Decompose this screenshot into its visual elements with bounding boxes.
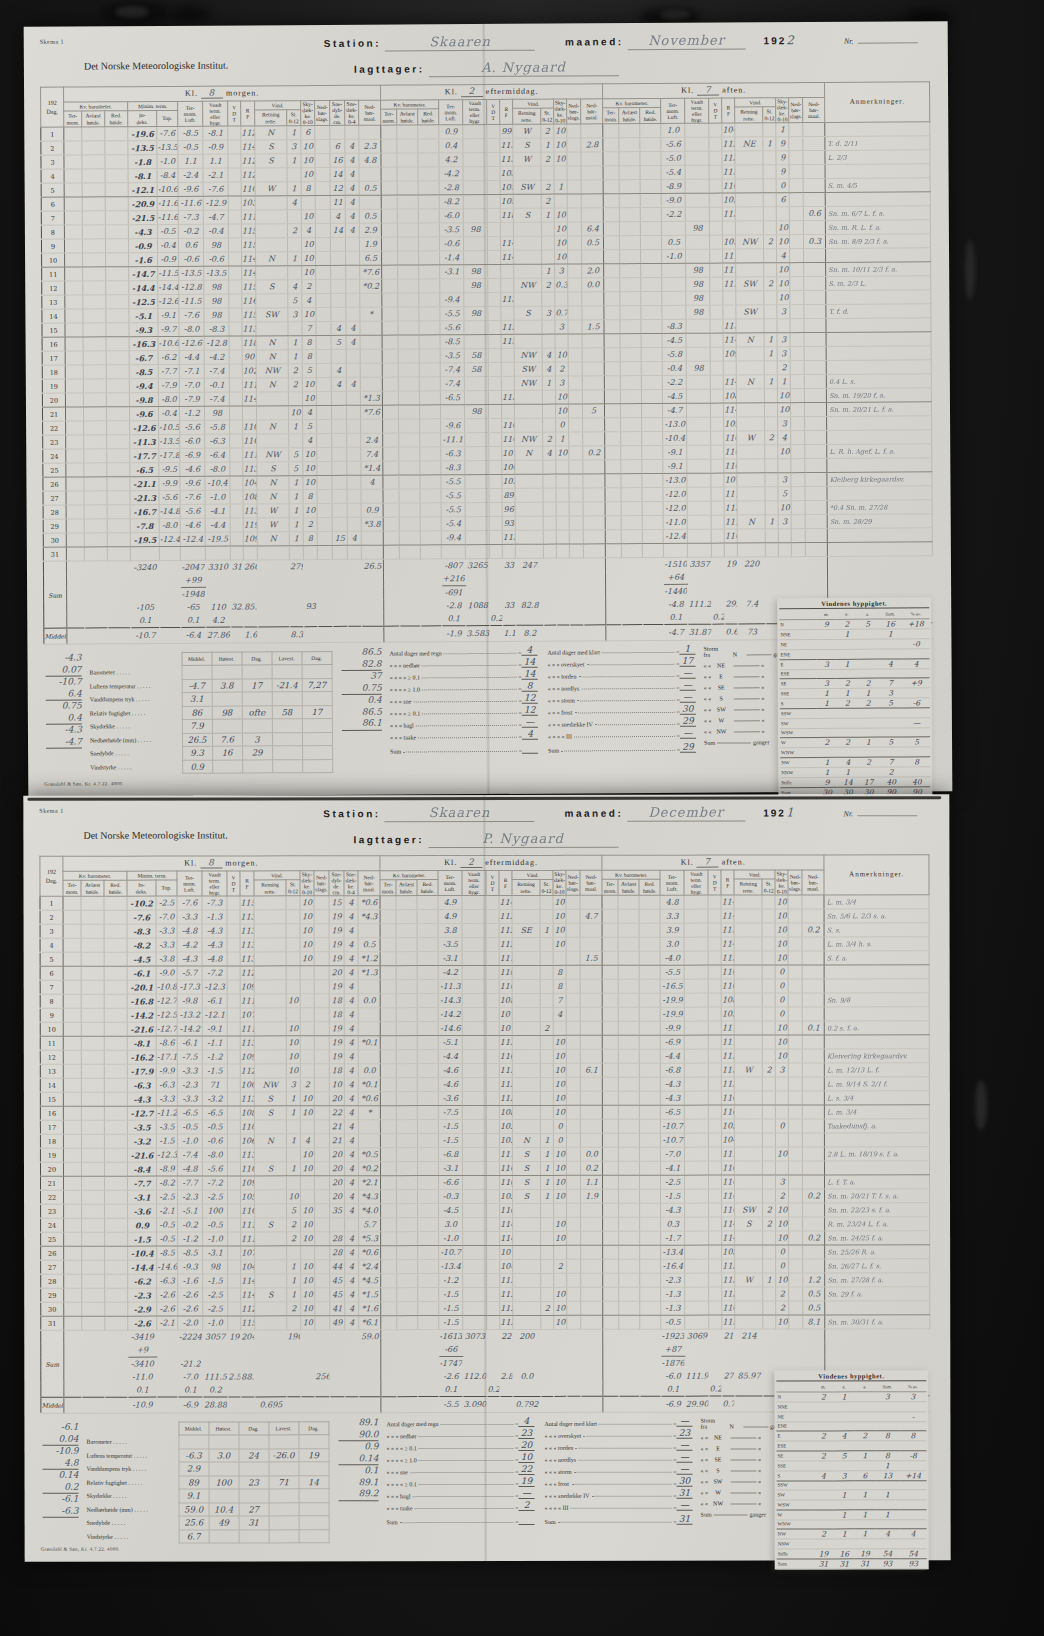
obs-value: 114 xyxy=(242,266,256,280)
obs-value: 98 xyxy=(686,221,710,235)
obs-value: -21.1 xyxy=(130,477,159,491)
storm-direction: E xyxy=(708,1446,728,1452)
obs-value: 98 xyxy=(686,277,710,291)
days-with-sky-list: Antal dager med klart=1« « « overskyet=1… xyxy=(547,643,696,754)
obs-value: -1.3 xyxy=(661,1301,685,1315)
stats-col-header: Dag. xyxy=(241,652,271,665)
count-label: « « « overskyet xyxy=(548,662,585,668)
wind-count: 5 xyxy=(879,737,903,747)
obs-value: 106 xyxy=(502,461,515,475)
obs-value: -4.1 xyxy=(205,504,230,518)
days-with-precip-list: Antal dager med regn=4« « « nedbør=14« «… xyxy=(389,644,538,755)
obs-value: -7.4 xyxy=(440,363,464,377)
obs-value: 114 xyxy=(500,1218,513,1232)
obs-value: 20 xyxy=(329,1176,344,1190)
obs-value: 104 xyxy=(722,123,735,137)
obs-value: -4.6 xyxy=(438,1078,462,1092)
wind-count xyxy=(813,1539,834,1549)
obs-value: 1 xyxy=(554,180,567,194)
wind-col-header: m. xyxy=(816,610,837,620)
obs-value: -7.7 xyxy=(127,1176,156,1190)
column-header: Sky- dæk- ke. 0-10 xyxy=(300,871,314,896)
obs-value: 10 xyxy=(775,1021,788,1035)
obs-value: 2 xyxy=(542,278,555,292)
obs-value: 4 xyxy=(345,1232,359,1246)
wind-count xyxy=(813,1461,834,1471)
obs-value: -3.8 xyxy=(156,952,177,966)
column-header: Vind. xyxy=(512,870,553,879)
wind-count: 2 xyxy=(837,619,858,629)
obs-value: 113 xyxy=(500,153,513,167)
obs-value: -12.9 xyxy=(203,196,228,210)
day-number: 2 xyxy=(41,141,64,155)
count-value: 19 xyxy=(519,1476,535,1487)
obs-value: -12.3 xyxy=(202,980,227,994)
institute-name: Det Norske Meteorologiske Institut. xyxy=(83,829,227,840)
remark xyxy=(825,122,930,137)
remark: Sn. 9/8 xyxy=(824,993,929,1007)
obs-value: 10 xyxy=(302,252,316,266)
count-row: « « « « ≥ 0.1=20 xyxy=(386,1439,534,1451)
day-number: 1 xyxy=(41,127,64,141)
obs-value: 1 xyxy=(286,1162,300,1176)
obs-value: -4.7 xyxy=(664,624,688,640)
obs-value: N xyxy=(256,350,288,364)
obs-value: -12.0 xyxy=(663,501,687,515)
stats-value xyxy=(298,1462,328,1476)
wind-direction-label: ENE xyxy=(776,1422,813,1432)
obs-value: 115 xyxy=(722,1315,735,1329)
column-header: Ned- bør- slags. xyxy=(315,100,330,125)
scan-artifact xyxy=(170,6,210,22)
table-row: 14-6.3-6.3-2.371100NW32104*0.1-4.611310-… xyxy=(40,1077,929,1093)
obs-value: -7.0 xyxy=(156,910,177,924)
wind-count xyxy=(855,1500,876,1510)
obs-value: -3.3 xyxy=(177,1064,202,1078)
stats-value: 17 xyxy=(302,705,332,719)
obs-value: S xyxy=(254,1106,286,1120)
obs-value: 110 xyxy=(724,529,737,543)
obs-value: -807 xyxy=(441,559,465,573)
obs-value: -10.5 xyxy=(159,421,180,435)
obs-value: 8 xyxy=(303,490,317,504)
column-header: Minim. term. xyxy=(127,871,177,880)
obs-value: 113 xyxy=(502,531,515,545)
obs-value: -4.5 xyxy=(663,389,687,403)
obs-value: 4 xyxy=(345,1204,359,1218)
obs-value: 9 xyxy=(776,151,789,165)
obs-value: 105 xyxy=(500,195,513,209)
obs-value: -8.4 xyxy=(157,169,178,183)
obs-value: S xyxy=(513,1176,541,1190)
wind-count: 1 xyxy=(855,1529,876,1539)
printer-mark: Grøndahl & Søn, Kr. 4.7.22. 4000. xyxy=(41,1547,120,1552)
stats-value: 19 xyxy=(298,1448,328,1462)
count-row: « « « « III=— xyxy=(548,727,696,740)
obs-value: -3.2 xyxy=(202,1092,227,1106)
obs-value: *4.3 xyxy=(358,910,380,924)
obs-value: -11.0 xyxy=(663,515,687,529)
count-value: — xyxy=(680,728,696,739)
obs-value: -1.6 xyxy=(178,1274,203,1288)
count-row: « « « snedække IV=31 xyxy=(545,1487,693,1499)
obs-value: *0.6 xyxy=(358,896,380,910)
obs-value: 4 xyxy=(344,1008,358,1022)
obs-value: 111.5 xyxy=(203,1371,228,1384)
wind-col-header: % av. xyxy=(902,609,929,619)
day-number: 31 xyxy=(43,547,66,561)
count-label: Antal dager med klart xyxy=(544,1421,596,1427)
obs-value: 10 xyxy=(553,1050,566,1064)
obs-value: -5.8 xyxy=(662,347,686,361)
stats-value: 27 xyxy=(239,1503,269,1517)
obs-value: -20.1 xyxy=(127,980,156,994)
observation-table: 192Dag.Kl. 8 morgen.Kl. 2 eftermiddag.Kl… xyxy=(24,81,951,645)
obs-value: 4 xyxy=(345,1288,359,1302)
obs-value: 114 xyxy=(724,375,737,389)
stats-row-label: Barometer . . . . . xyxy=(86,1435,178,1449)
count-value: 20 xyxy=(518,1440,534,1451)
obs-value: 10 xyxy=(553,938,566,952)
day-number: 31 xyxy=(41,1316,64,1330)
obs-value: -1.5 xyxy=(128,1232,157,1246)
obs-value: 10 xyxy=(554,1232,567,1246)
wind-count: 1 xyxy=(858,688,879,698)
obs-value: -2.6 xyxy=(157,1302,178,1316)
obs-value: 31.87 xyxy=(688,624,712,640)
obs-value: 6.5 xyxy=(360,251,382,265)
obs-value: 10 xyxy=(775,1049,788,1063)
obs-value: 4 xyxy=(344,994,358,1008)
obs-value: -5.7 xyxy=(177,966,202,980)
wind-count: 1 xyxy=(875,1509,899,1519)
remark: L. m. 3/4 xyxy=(824,895,929,909)
obs-value: NW xyxy=(254,1078,286,1092)
obs-value: 0.4 xyxy=(439,139,463,153)
wind-count xyxy=(878,669,902,679)
column-header: St. 0-12 xyxy=(287,109,301,125)
wind-frequency-box: Vindenes hyppighet.m.e.a.Sum.% av.N2133N… xyxy=(774,1370,928,1569)
obs-value: 2 xyxy=(776,1301,789,1315)
wind-count xyxy=(878,649,902,659)
obs-value: -14.2 xyxy=(127,1008,156,1022)
obs-value: 27 xyxy=(722,1370,735,1383)
count-label: « « « sne xyxy=(390,699,412,705)
obs-value: 2.4 xyxy=(361,433,383,447)
obs-value: 88.5 xyxy=(241,1371,255,1384)
obs-value: 10 xyxy=(776,1315,789,1329)
obs-value: 107 xyxy=(724,473,737,487)
wind-count xyxy=(817,748,838,758)
obs-value: -4.8 xyxy=(664,598,688,611)
wind-direction-label: SSE xyxy=(776,1461,813,1471)
obs-value: -2.0 xyxy=(178,1316,203,1330)
wind-count xyxy=(903,688,930,698)
obs-value: 10 xyxy=(777,277,790,291)
stats-value: 49 xyxy=(209,1516,239,1530)
obs-value: 110 xyxy=(240,1162,254,1176)
stats-value xyxy=(269,1516,299,1530)
obs-value: -2.3 xyxy=(177,1078,202,1092)
wind-count xyxy=(903,708,930,718)
stats-value: 89 xyxy=(179,1476,209,1490)
obs-value: 111 xyxy=(723,263,736,277)
obs-value: 1.1 xyxy=(203,154,228,168)
obs-value: 10 xyxy=(300,910,314,924)
obs-value: *1.4 xyxy=(361,461,383,475)
stats-value xyxy=(209,1489,239,1503)
obs-value: 59.0 xyxy=(359,1330,381,1344)
column-header: Ter- mom. Luft. xyxy=(178,101,203,126)
column-header: Minim. term. xyxy=(128,101,178,110)
stats-value xyxy=(302,719,332,733)
count-label: « « « « ≥ 0.1 xyxy=(387,1481,417,1487)
obs-value: 4 xyxy=(344,980,358,994)
obs-value: 3.090 xyxy=(463,1397,487,1413)
day-number: 4 xyxy=(40,938,63,952)
maaned-label: maaned: xyxy=(565,36,624,47)
obs-value: 10 xyxy=(300,1106,314,1120)
obs-value: 110 xyxy=(722,179,735,193)
obs-value: 109 xyxy=(240,1176,254,1190)
wind-count: 4 xyxy=(900,1529,927,1539)
sum-label: Sum xyxy=(43,561,66,628)
wind-count xyxy=(900,1490,927,1500)
obs-value: -2.3 xyxy=(661,1273,685,1287)
obs-value: 3069 xyxy=(685,1329,709,1343)
count-label: « « « taake xyxy=(387,1505,413,1511)
obs-value: 0 xyxy=(776,179,789,193)
obs-value: -1.2 xyxy=(178,1232,203,1246)
stats-value: 26.5 xyxy=(182,733,212,747)
table-row: 1-10.2-2.5-7.6-7.311510154*0.64.9114104.… xyxy=(40,895,929,911)
obs-value: 4 xyxy=(344,896,358,910)
obs-value: 113 xyxy=(500,139,513,153)
obs-value: 204 xyxy=(241,1330,255,1344)
column-header: Avlæst høide. xyxy=(619,107,640,124)
obs-value: -8.0 xyxy=(158,393,179,407)
column-header: V D T xyxy=(486,870,499,895)
obs-value: 0.5 xyxy=(581,236,603,250)
obs-value: -6.2 xyxy=(128,1274,157,1288)
obs-value: -105 xyxy=(131,601,160,614)
wind-direction-label: WSW xyxy=(780,728,817,738)
count-label: « « « sne xyxy=(387,1469,409,1475)
obs-value: 112 xyxy=(240,1064,254,1078)
count-value: 30 xyxy=(680,704,696,715)
obs-value: 10 xyxy=(302,308,316,322)
day-number: 9 xyxy=(40,1008,63,1022)
obs-value: NW xyxy=(515,432,543,446)
wind-col-header: Sum. xyxy=(878,610,902,620)
obs-value: -9.6 xyxy=(180,476,205,490)
obs-value: 10 xyxy=(778,403,791,417)
obs-value: -9.4 xyxy=(440,293,464,307)
obs-value: 0.6 xyxy=(725,624,738,640)
obs-value: 98 xyxy=(686,291,710,305)
column-header: Avlæst høide. xyxy=(396,879,417,895)
obs-value: 2 xyxy=(302,280,316,294)
obs-value: 104 xyxy=(722,1133,735,1147)
obs-value: -6.8 xyxy=(438,1148,462,1162)
wind-count xyxy=(837,708,858,718)
station-value: Skaaren xyxy=(429,805,491,820)
obs-value: -16.3 xyxy=(129,337,158,351)
count-value: — xyxy=(519,1488,535,1499)
wind-count xyxy=(837,747,858,757)
wind-count xyxy=(813,1412,834,1422)
obs-value: 107 xyxy=(499,1022,512,1036)
wind-count xyxy=(837,728,858,738)
wind-count: 2 xyxy=(813,1392,834,1402)
obs-value: -1.3 xyxy=(661,1287,685,1301)
obs-value: -2.2 xyxy=(661,207,685,221)
maaned-value: November xyxy=(648,33,725,48)
obs-value: 2 xyxy=(764,235,777,249)
form-sheet-december: Skema 1 Det Norske Meteorologiske Instit… xyxy=(23,794,950,1562)
sum-label: Sum xyxy=(41,1330,64,1397)
column-header: Red. høide. xyxy=(104,880,127,896)
obs-value: -4.5 xyxy=(662,333,686,347)
obs-value: -4.8 xyxy=(202,952,227,966)
obs-value: +64 xyxy=(664,571,688,585)
obs-value: 58 xyxy=(464,363,488,377)
obs-value: 107 xyxy=(241,1246,255,1260)
obs-value: -14.4 xyxy=(158,281,179,295)
obs-value: 15 xyxy=(329,896,344,910)
obs-value: 10 xyxy=(301,168,315,182)
wind-direction-label: ESE xyxy=(776,1441,813,1451)
obs-value: -11.3 xyxy=(438,980,462,994)
count-value: 23 xyxy=(676,1428,692,1439)
count-label: « « « snedække IV xyxy=(548,722,593,728)
obs-value: -9.9 xyxy=(660,1021,684,1035)
wind-count: 1 xyxy=(855,1490,876,1500)
storm-direction: S xyxy=(711,696,731,702)
obs-value: -2.1 xyxy=(203,168,228,182)
obs-value: 4 xyxy=(346,335,360,349)
day-number: 16 xyxy=(42,337,65,351)
obs-value: -3.2 xyxy=(127,1134,156,1148)
day-number: 16 xyxy=(40,1106,63,1120)
obs-value: SW xyxy=(736,277,764,291)
obs-value: 3.0 xyxy=(660,937,684,951)
obs-value: 110 xyxy=(499,980,512,994)
obs-value: -14.4 xyxy=(128,1260,157,1274)
obs-value: 35 xyxy=(330,1204,345,1218)
obs-value: -10.2 xyxy=(127,896,156,910)
obs-value: -9.4 xyxy=(441,531,465,545)
obs-value: 85.6 xyxy=(244,601,258,614)
wind-count xyxy=(854,1441,875,1451)
obs-value: *5.3 xyxy=(359,1232,381,1246)
stats-value: 2.9 xyxy=(178,1462,208,1476)
obs-value: -4.3 xyxy=(202,938,227,952)
obs-value: 0.5 xyxy=(803,1301,825,1315)
obs-value: -9.6 xyxy=(129,407,158,421)
obs-value: -3.3 xyxy=(156,924,177,938)
obs-value: -8.6 xyxy=(156,1036,177,1050)
obs-value: 113 xyxy=(499,1092,512,1106)
obs-value: 0.9 xyxy=(439,125,463,139)
obs-value: 98 xyxy=(203,238,228,252)
count-label: « « « torden xyxy=(548,674,577,680)
wind-count xyxy=(813,1422,834,1432)
obs-value: 114 xyxy=(242,252,256,266)
obs-value: 0.2 xyxy=(802,923,824,937)
obs-value: -7.6 xyxy=(180,490,205,504)
day-number: 19 xyxy=(40,1148,63,1162)
obs-value: 26.5 xyxy=(361,559,383,573)
obs-value: 1088 xyxy=(466,599,490,612)
obs-value: 0 xyxy=(553,1134,566,1148)
wind-direction-label: Stille xyxy=(780,777,817,787)
obs-value: 119 xyxy=(243,518,257,532)
wind-count xyxy=(903,766,930,776)
obs-value: 111 xyxy=(724,515,737,529)
wind-count: 8 xyxy=(875,1450,899,1460)
obs-value: 10 xyxy=(301,154,315,168)
obs-value: 10 xyxy=(300,1092,314,1106)
obs-value: 0.6 xyxy=(803,207,825,221)
obs-value: 4 xyxy=(345,1190,359,1204)
stats-value xyxy=(238,1435,268,1449)
wind-count: 2 xyxy=(837,678,858,688)
obs-value: 29.90 xyxy=(685,1396,709,1412)
obs-value: 0 xyxy=(553,1120,566,1134)
obs-value: -3.1 xyxy=(438,952,462,966)
remark: L. 2/3 xyxy=(825,150,930,165)
wind-count: 8 xyxy=(875,1431,899,1441)
wind-count: 54 xyxy=(900,1548,927,1558)
obs-value: -0.9 xyxy=(128,239,157,253)
stats-row-label: Skydække . . . . . xyxy=(87,1489,179,1503)
obs-value: -13.5 xyxy=(204,266,229,280)
count-row: « « « nedbør=23 xyxy=(386,1427,534,1439)
obs-value: 110 xyxy=(243,434,257,448)
wind-count xyxy=(900,1441,927,1451)
column-header: Kv. barometer. xyxy=(602,870,660,879)
obs-value: 22 xyxy=(500,1330,513,1344)
obs-value: 10 xyxy=(303,462,317,476)
obs-value: 10 xyxy=(554,1316,567,1330)
obs-value: 3 xyxy=(555,320,568,334)
obs-value: -19.5 xyxy=(130,533,159,547)
remark xyxy=(825,192,930,207)
obs-value: 2 xyxy=(300,1078,314,1092)
wind-count xyxy=(900,1460,927,1470)
wind-count xyxy=(900,1519,927,1529)
obs-value: 0.5 xyxy=(662,235,686,249)
obs-value: -9.9 xyxy=(156,1064,177,1078)
obs-value: -0.5 xyxy=(661,1315,685,1329)
obs-value: -4.7 xyxy=(663,403,687,417)
obs-value: 10 xyxy=(778,501,791,515)
wind-count xyxy=(900,1402,927,1412)
obs-value: 2.8 xyxy=(581,138,603,152)
table-row: 20-8.4-8.9-4.8-5.6110S110204*0.2-3.1110S… xyxy=(40,1161,929,1177)
obs-value: 99 xyxy=(500,125,513,139)
obs-value: 2 xyxy=(303,518,317,532)
obs-value: *4.5 xyxy=(359,1274,381,1288)
wind-direction-label: WSW xyxy=(777,1500,814,1510)
obs-value: -3.3 xyxy=(177,910,202,924)
obs-value: 0.1 xyxy=(178,1384,203,1398)
stats-row-label: Vindstyrke . . . . . xyxy=(87,1530,179,1544)
obs-value: 116 xyxy=(242,294,256,308)
stats-value xyxy=(212,692,242,706)
remark: Sn. 5/6 L. 2/3 s. a. xyxy=(824,909,929,923)
